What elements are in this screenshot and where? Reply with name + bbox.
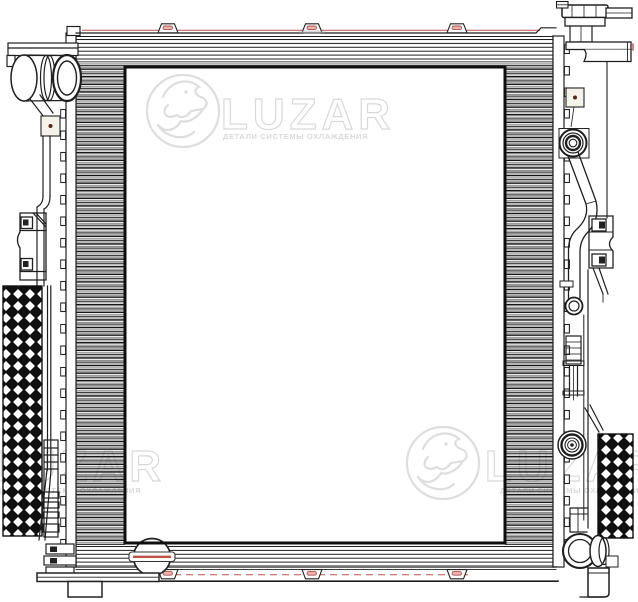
top-tank-lines — [76, 38, 553, 62]
mounting-tab-top — [158, 24, 178, 33]
watermark-subtitle: ДЕТАЛИ СИСТЕМЫ ОХЛАЖДЕНИЯ — [223, 132, 368, 141]
grommet-right — [558, 431, 586, 459]
smudge — [298, 30, 326, 33]
hose-body — [11, 55, 81, 101]
sensor-dot — [573, 96, 577, 100]
drawing-canvas: LUZAR ДЕТАЛИ СИСТЕМЫ ОХЛАЖДЕНИЯ LUZAR ДЕ… — [0, 0, 638, 602]
foam-seal-right — [598, 434, 633, 538]
foam-seal-left — [3, 286, 42, 536]
sensor-bracket-left — [41, 116, 60, 136]
radiator-technical-drawing: LUZAR ДЕТАЛИ СИСТЕМЫ ОХЛАЖДЕНИЯ LUZAR ДЕ… — [0, 0, 638, 602]
mounting-tab-top — [447, 24, 467, 33]
mounting-tab-bottom — [302, 570, 322, 579]
sensor-dot — [49, 124, 53, 128]
mounting-tab-bottom — [447, 570, 467, 579]
